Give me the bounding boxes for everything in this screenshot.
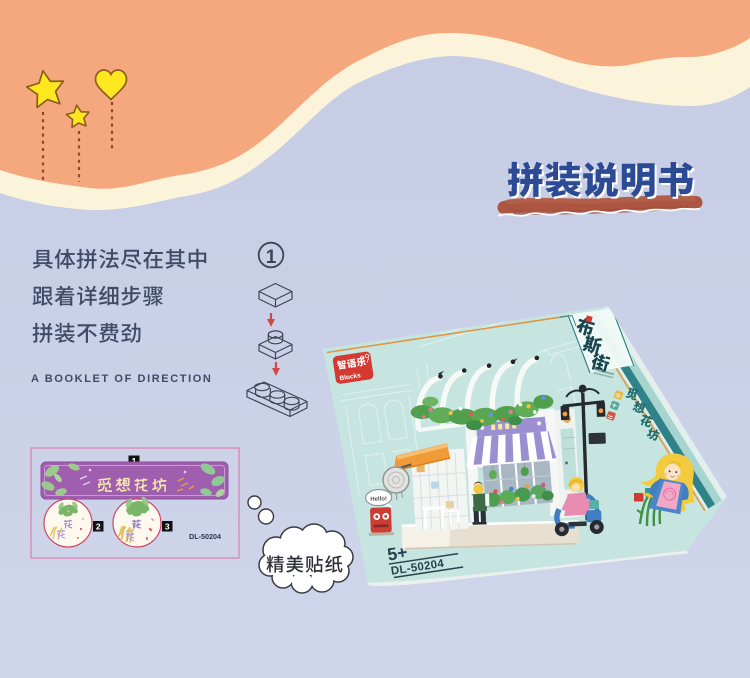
svg-text:2: 2 [96, 522, 101, 532]
svg-text:Hello!: Hello! [370, 496, 387, 503]
svg-text:DL-50204: DL-50204 [189, 532, 221, 541]
svg-text:1: 1 [266, 247, 277, 268]
svg-text:A BOOKLET OF DIRECTION: A BOOKLET OF DIRECTION [31, 373, 212, 385]
svg-text:3: 3 [165, 522, 170, 532]
